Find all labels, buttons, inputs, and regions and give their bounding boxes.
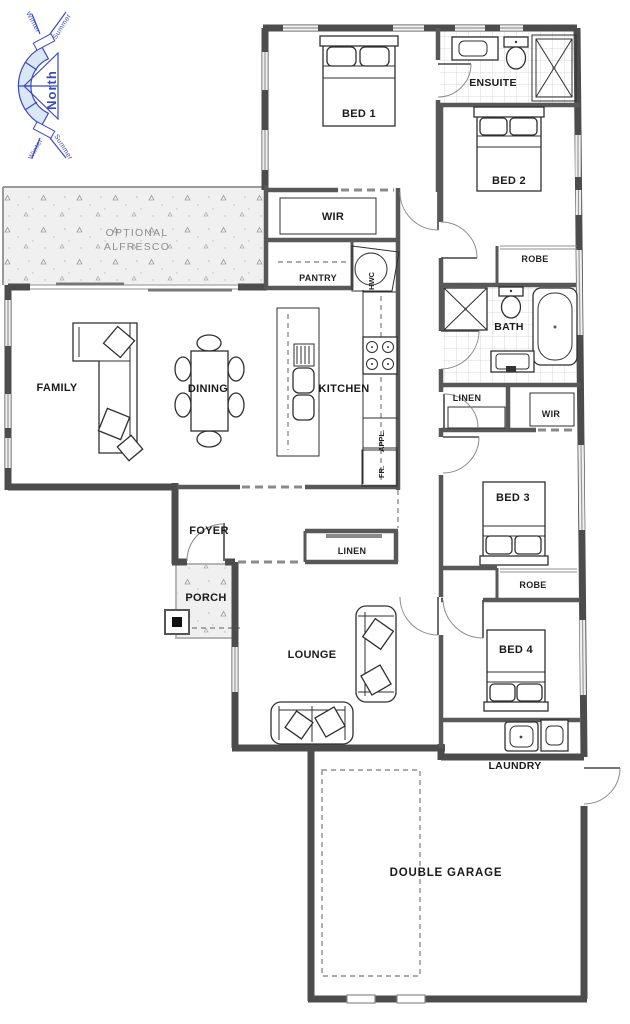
compass-north-label: North — [44, 70, 59, 110]
hwc-label: HWC — [367, 271, 376, 289]
robe-bed3-label: ROBE — [519, 580, 546, 590]
vanity-icon — [452, 37, 498, 60]
laundry-fixtures — [505, 720, 568, 751]
appl-label: APPL. — [377, 430, 386, 452]
doors — [187, 64, 620, 804]
porch-post — [165, 610, 189, 634]
lounge-sofa-icon — [271, 606, 396, 744]
ensuite-label: ENSUITE — [469, 77, 517, 89]
compass-summer-bottom-label: Summer — [52, 133, 73, 161]
vanity-icon — [491, 351, 534, 372]
toilet-icon — [499, 287, 523, 318]
family-label: FAMILY — [36, 382, 77, 394]
bathtub-icon — [533, 288, 577, 365]
linen-entry-label: LINEN — [338, 546, 367, 556]
wir-master-label: WIR — [322, 211, 344, 223]
laundry-tub-icon — [505, 722, 538, 751]
alfresco-label-line2: ALFRESCO — [104, 241, 170, 253]
bed3-door — [443, 437, 479, 473]
bed2-door — [441, 222, 477, 258]
bed4-label: BED 4 — [499, 644, 533, 656]
bed4-door — [443, 600, 483, 638]
porch-label: PORCH — [185, 592, 226, 604]
garage-label: DOUBLE GARAGE — [390, 867, 503, 879]
toilet-icon — [504, 37, 528, 69]
compass-winter-top-label: Winter — [24, 11, 41, 34]
family-sofa-icon — [73, 323, 143, 461]
kitchen-island — [277, 308, 319, 456]
linen-hall-label: LINEN — [453, 393, 482, 403]
master-hall-door — [400, 192, 438, 230]
fridge-label: FR. — [377, 466, 386, 478]
alfresco-label-line1: OPTIONAL — [106, 227, 169, 239]
laundry-label: LAUNDRY — [488, 760, 541, 772]
bed2-label: BED 2 — [492, 175, 526, 187]
floor-plan-page: North Winter Summer Winter Summer OPTION… — [0, 0, 630, 1024]
dining-label: DINING — [188, 383, 228, 395]
compass-winter-bottom-label: Winter — [28, 137, 45, 160]
bed1-label: BED 1 — [342, 108, 376, 120]
lounge-door — [400, 597, 438, 635]
robe-bed2-label: ROBE — [521, 254, 548, 264]
kitchen-label: KITCHEN — [319, 383, 370, 395]
floor-plan-drawing: North Winter Summer Winter Summer OPTION… — [0, 0, 630, 1024]
bath-label: BATH — [494, 321, 524, 333]
cooktop-icon — [363, 337, 397, 374]
bed4-icon — [484, 630, 548, 711]
kitchen-sink-icon — [293, 344, 314, 420]
bed3-label: BED 3 — [496, 492, 530, 504]
washing-machine-icon — [541, 720, 568, 751]
compass: North Winter Summer Winter Summer — [18, 11, 74, 162]
lounge-label: LOUNGE — [288, 649, 337, 661]
shower-icon — [444, 288, 487, 330]
foyer-label: FOYER — [189, 525, 228, 537]
wir-bed3-label: WIR — [542, 409, 561, 419]
pantry-label: PANTRY — [299, 273, 337, 283]
laundry-exterior-door — [584, 768, 620, 804]
